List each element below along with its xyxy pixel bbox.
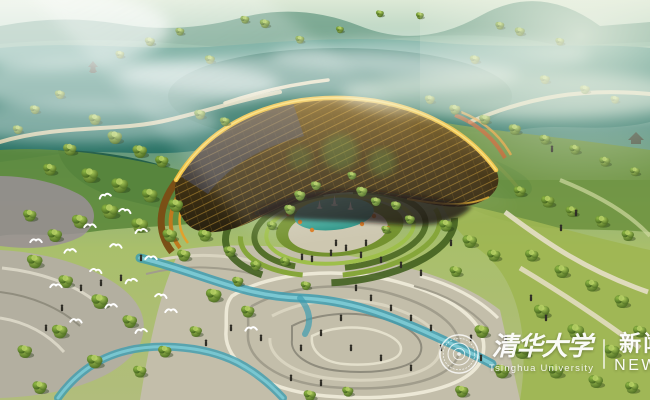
rendering-scene: 清华大学 Tsinghua University 新闻 NEWS: [0, 0, 650, 400]
tsinghua-news-watermark: 清华大学 Tsinghua University 新闻 NEWS: [438, 333, 650, 375]
news-label-cn: 新闻: [619, 333, 650, 355]
tsinghua-seal-icon: [438, 333, 480, 375]
news-wordmark: 新闻 NEWS: [614, 333, 650, 375]
university-name-cn: 清华大学: [492, 334, 592, 360]
university-name-en: Tsinghua University: [489, 363, 594, 374]
haze-top-right: [420, 0, 650, 180]
watermark-divider: [603, 339, 605, 369]
news-label-en: NEWS: [614, 357, 650, 375]
university-wordmark: 清华大学 Tsinghua University: [489, 334, 594, 374]
